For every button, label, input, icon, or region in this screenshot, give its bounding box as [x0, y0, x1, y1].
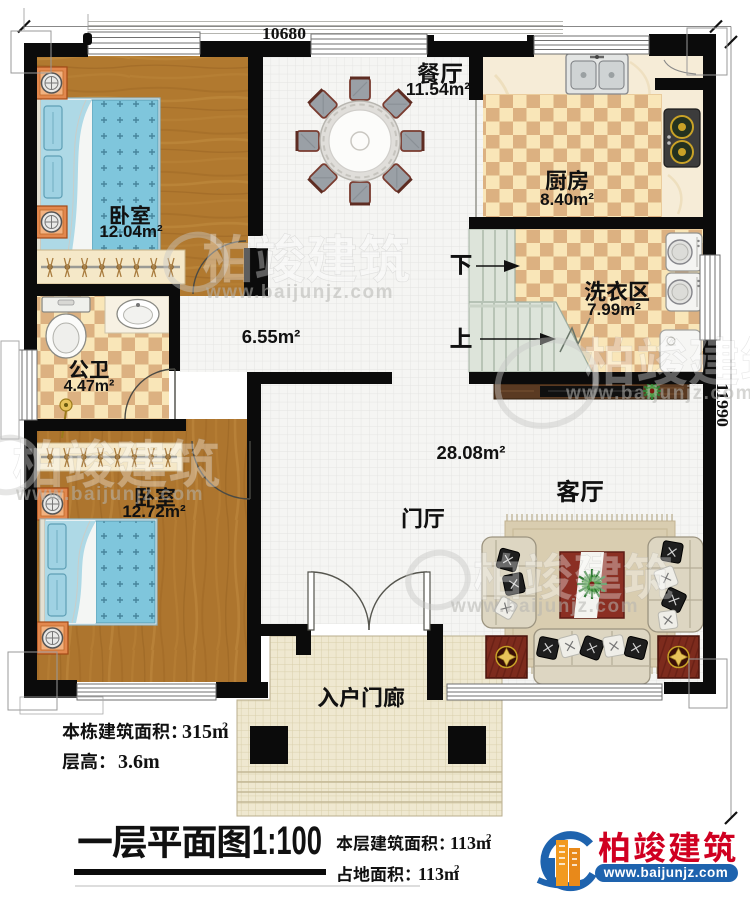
svg-text:3.6m: 3.6m [118, 751, 160, 773]
svg-text:12.04m²: 12.04m² [99, 222, 163, 241]
svg-text:2: 2 [454, 863, 460, 875]
svg-text:6.55m²: 6.55m² [242, 326, 301, 347]
svg-text:8.40m²: 8.40m² [540, 190, 594, 209]
svg-text:113m: 113m [418, 864, 459, 884]
svg-text:www.baijunjz.com: www.baijunjz.com [603, 865, 729, 880]
svg-text:28.08m²: 28.08m² [437, 442, 506, 463]
svg-text:www.baijunjz.com: www.baijunjz.com [205, 282, 394, 303]
svg-text:10680: 10680 [262, 24, 306, 43]
svg-text:11.54m²: 11.54m² [406, 79, 470, 99]
svg-text:2: 2 [486, 832, 492, 844]
svg-text:7.99m²: 7.99m² [587, 300, 641, 319]
svg-text:2: 2 [222, 719, 228, 733]
svg-text:www.baijunjz.com: www.baijunjz.com [15, 484, 204, 505]
svg-text:www.baijunjz.com: www.baijunjz.com [450, 596, 639, 617]
svg-text:4.47m²: 4.47m² [64, 378, 115, 395]
svg-text:113m: 113m [450, 833, 491, 853]
svg-text:1:100: 1:100 [252, 819, 322, 863]
svg-text:www.baijunjz.com: www.baijunjz.com [565, 383, 750, 404]
